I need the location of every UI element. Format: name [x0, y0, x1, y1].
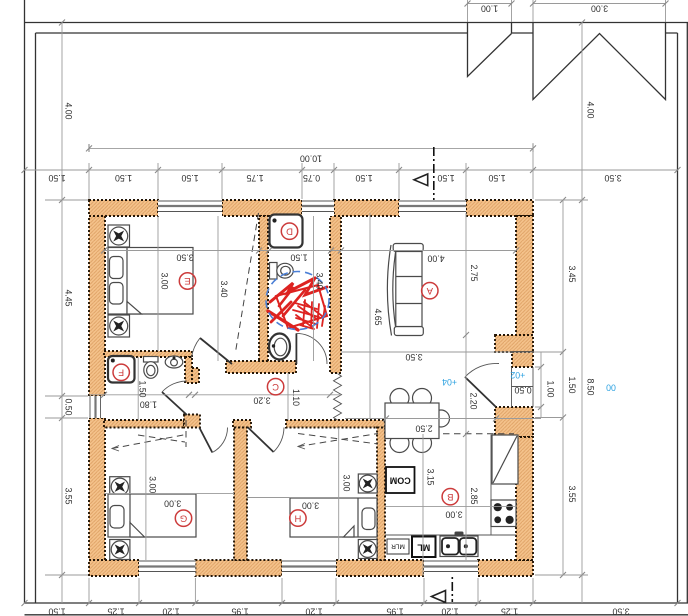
svg-text:1.00: 1.00: [481, 4, 498, 14]
svg-text:2.20: 2.20: [469, 392, 479, 409]
svg-text:1.50: 1.50: [138, 380, 148, 397]
svg-text:1.00: 1.00: [546, 380, 556, 397]
svg-text:3.50: 3.50: [405, 352, 422, 362]
svg-text:4.00: 4.00: [64, 102, 74, 119]
svg-text:1.50: 1.50: [48, 607, 65, 616]
svg-text:0.50: 0.50: [514, 385, 531, 395]
svg-text:4.00: 4.00: [586, 101, 596, 118]
svg-text:1.95: 1.95: [386, 607, 403, 616]
svg-text:8.50: 8.50: [586, 378, 596, 395]
svg-text:1.50: 1.50: [290, 253, 307, 263]
svg-text:3.50: 3.50: [604, 173, 621, 183]
svg-text:1.10: 1.10: [291, 389, 301, 406]
svg-text:3.00: 3.00: [302, 501, 319, 511]
svg-text:3.00: 3.00: [148, 476, 158, 493]
svg-text:MLR: MLR: [391, 543, 405, 550]
svg-text:4.65: 4.65: [373, 308, 383, 325]
svg-text:4.00: 4.00: [427, 254, 444, 264]
svg-text:1.50: 1.50: [115, 173, 132, 183]
svg-text:1.50: 1.50: [48, 173, 65, 183]
svg-text:1.75: 1.75: [246, 173, 263, 183]
svg-text:3.40: 3.40: [315, 272, 325, 289]
svg-text:3.00: 3.00: [445, 510, 462, 520]
svg-text:1.80: 1.80: [140, 400, 157, 410]
svg-text:1.25: 1.25: [107, 607, 124, 616]
svg-text:1.50: 1.50: [355, 173, 372, 183]
svg-text:1.50: 1.50: [567, 376, 577, 393]
svg-text:3.55: 3.55: [64, 487, 74, 504]
svg-text:1.50: 1.50: [437, 173, 454, 183]
svg-text:3.50: 3.50: [176, 253, 193, 263]
svg-text:4.45: 4.45: [64, 289, 74, 306]
svg-text:3.00: 3.00: [160, 272, 170, 289]
svg-text:3.45: 3.45: [567, 265, 577, 282]
svg-text:10.00: 10.00: [300, 154, 322, 164]
svg-text:3.00: 3.00: [342, 474, 352, 491]
svg-text:H: H: [294, 512, 301, 523]
svg-text:1.20: 1.20: [441, 607, 458, 616]
svg-text:3.55: 3.55: [567, 485, 577, 502]
svg-text:1.50: 1.50: [181, 173, 198, 183]
svg-text:C: C: [272, 381, 279, 392]
svg-text:1.95: 1.95: [231, 607, 248, 616]
svg-text:1.20: 1.20: [162, 607, 179, 616]
svg-text:ML: ML: [417, 543, 430, 553]
svg-text:3.15: 3.15: [426, 468, 436, 485]
svg-text:D: D: [286, 225, 293, 236]
svg-text:F: F: [118, 367, 124, 378]
svg-text:2.75: 2.75: [469, 264, 479, 281]
svg-text:B: B: [447, 491, 453, 502]
svg-text:00: 00: [606, 383, 616, 393]
svg-text:+02: +02: [510, 370, 525, 380]
svg-text:E: E: [184, 275, 190, 286]
svg-text:0.50: 0.50: [64, 398, 74, 415]
svg-text:3.50: 3.50: [612, 607, 629, 616]
svg-text:COM: COM: [390, 476, 411, 486]
svg-text:3.00: 3.00: [591, 4, 608, 14]
svg-text:1.25: 1.25: [501, 607, 518, 616]
svg-text:2.50: 2.50: [415, 424, 432, 434]
svg-text:0.75: 0.75: [303, 173, 320, 183]
svg-text:1.20: 1.20: [305, 607, 322, 616]
svg-text:A: A: [426, 285, 433, 296]
svg-text:2.85: 2.85: [469, 487, 479, 504]
svg-text:G: G: [180, 512, 187, 523]
svg-text:3.40: 3.40: [219, 280, 229, 297]
svg-text:+04: +04: [442, 377, 457, 387]
svg-text:3.20: 3.20: [253, 396, 270, 406]
svg-text:3.00: 3.00: [164, 499, 181, 509]
svg-text:1.50: 1.50: [488, 173, 505, 183]
